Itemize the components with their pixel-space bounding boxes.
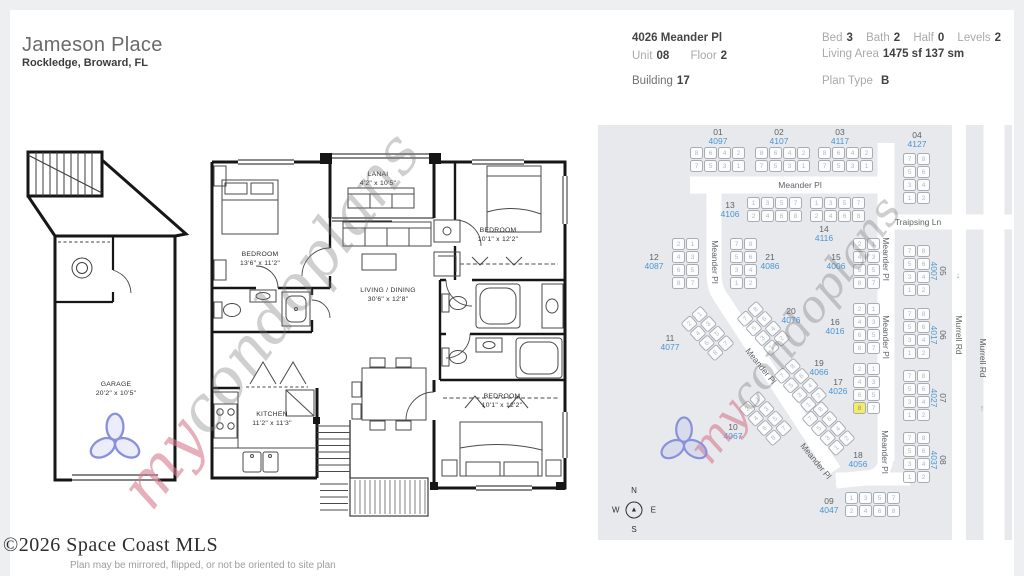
map-unit-09-3[interactable]: 3: [859, 492, 872, 504]
map-unit-12-7[interactable]: 7: [686, 277, 699, 289]
map-unit-13-5[interactable]: 5: [775, 197, 788, 209]
map-unit-13-6[interactable]: 6: [775, 210, 788, 222]
map-unit-02-8[interactable]: 8: [755, 147, 768, 159]
map-building-label-04: 044127: [897, 131, 937, 149]
map-unit-01-5[interactable]: 5: [704, 160, 717, 172]
map-unit-16-7[interactable]: 7: [867, 342, 880, 354]
map-unit-12-5[interactable]: 5: [686, 264, 699, 276]
map-unit-21-8[interactable]: 8: [744, 238, 757, 250]
map-unit-09-4[interactable]: 4: [859, 505, 872, 517]
map-unit-04-4[interactable]: 4: [917, 179, 930, 191]
bath-label: Bath: [866, 32, 890, 44]
building-label: Building: [632, 75, 673, 87]
map-building-label-10: 104067: [713, 423, 753, 441]
map-unit-16-3[interactable]: 3: [867, 316, 880, 328]
map-unit-21-7[interactable]: 7: [730, 238, 743, 250]
map-unit-08-1[interactable]: 1: [903, 471, 916, 483]
map-unit-08-5[interactable]: 5: [903, 445, 916, 457]
map-building-label-16: 164016: [815, 318, 855, 336]
map-unit-06-1[interactable]: 1: [903, 347, 916, 359]
compass-north: N: [631, 486, 637, 495]
unit-value: 08: [656, 50, 669, 62]
living-area-label: Living Area: [822, 48, 879, 60]
map-unit-17-2[interactable]: 2: [853, 363, 866, 375]
map-unit-21-3[interactable]: 3: [730, 264, 743, 276]
unit-floor-line: Unit08 Floor2: [632, 50, 737, 62]
map-unit-13-8[interactable]: 8: [789, 210, 802, 222]
map-building-15: 21436587: [853, 238, 880, 289]
unit-label: Unit: [632, 50, 652, 62]
map-unit-15-7[interactable]: 7: [867, 277, 880, 289]
map-unit-01-4[interactable]: 4: [718, 147, 731, 159]
map-unit-15-8[interactable]: 8: [853, 277, 866, 289]
map-building-12: 21436587: [672, 238, 699, 289]
map-building-06: 78563412: [903, 308, 930, 359]
map-building-label-03: 034117: [820, 128, 860, 146]
map-unit-15-2[interactable]: 2: [853, 238, 866, 250]
map-building-05: 78563412: [903, 245, 930, 296]
map-unit-09-5[interactable]: 5: [873, 492, 886, 504]
site-map: 8642753101409786427531024107864275310341…: [598, 125, 1012, 540]
disclaimer-text: Plan may be mirrored, flipped, or not be…: [70, 560, 336, 571]
map-unit-14-6[interactable]: 6: [838, 210, 851, 222]
map-building-label-13: 134106: [710, 201, 750, 219]
map-unit-03-6[interactable]: 6: [832, 147, 845, 159]
street-label-murrell-rd-8: Murrell Rd: [954, 315, 964, 354]
levels-label: Levels: [957, 32, 990, 44]
map-unit-02-1[interactable]: 1: [797, 160, 810, 172]
map-unit-01-8[interactable]: 8: [690, 147, 703, 159]
map-unit-14-2[interactable]: 2: [810, 210, 823, 222]
compass-east: E: [651, 506, 656, 515]
map-unit-12-1[interactable]: 1: [686, 238, 699, 250]
map-unit-21-1[interactable]: 1: [730, 277, 743, 289]
map-unit-16-1[interactable]: 1: [867, 303, 880, 315]
floorplan-panel: BEDROOM13'6" x 11'2"LANAI4'2" x 10'5"LIV…: [10, 130, 590, 530]
half-value: 0: [938, 32, 944, 44]
street-label-murrell-rd-9: Murrell Rd: [978, 338, 988, 377]
map-unit-13-3[interactable]: 3: [761, 197, 774, 209]
map-unit-12-2[interactable]: 2: [672, 238, 685, 250]
map-unit-03-2[interactable]: 2: [860, 147, 873, 159]
compass-rose: N S W E ▲: [612, 488, 656, 532]
map-unit-08-3[interactable]: 3: [903, 458, 916, 470]
bed-label: Bed: [822, 32, 842, 44]
map-unit-02-4[interactable]: 4: [783, 147, 796, 159]
map-building-09: 13572468: [845, 492, 900, 517]
map-unit-09-6[interactable]: 6: [873, 505, 886, 517]
street-label-traipsing-ln-7: Traipsing Ln: [895, 217, 941, 227]
room-label-kitchen: KITCHEN11'2" x 11'3": [252, 410, 292, 428]
map-building-label-11: 114077: [650, 334, 690, 352]
map-unit-04-3[interactable]: 3: [903, 179, 916, 191]
street-label-meander-pl-1: Meander Pl: [710, 240, 720, 283]
map-unit-04-2[interactable]: 2: [917, 192, 930, 204]
map-unit-08-7[interactable]: 7: [903, 432, 916, 444]
street-label-meander-pl-4: Meander Pl: [880, 430, 890, 473]
map-unit-17-1[interactable]: 1: [867, 363, 880, 375]
room-label-garage: GARAGE20'2" x 10'5": [96, 380, 137, 398]
building-value: 17: [677, 75, 690, 87]
map-building-13: 13572468: [747, 197, 802, 222]
map-building-01: 86427531: [690, 147, 745, 172]
map-unit-05-1[interactable]: 1: [903, 284, 916, 296]
map-unit-02-3[interactable]: 3: [783, 160, 796, 172]
map-building-03: 86427531: [818, 147, 873, 172]
map-unit-17-3[interactable]: 3: [867, 376, 880, 388]
map-unit-04-8[interactable]: 8: [917, 153, 930, 165]
map-unit-16-8[interactable]: 8: [853, 342, 866, 354]
compass-needle-icon: ▲: [626, 502, 643, 519]
compass-south: S: [631, 525, 636, 534]
room-label-living-dining: LIVING / DINING30'6" x 12'8": [360, 286, 416, 304]
map-unit-13-7[interactable]: 7: [789, 197, 802, 209]
map-unit-07-1[interactable]: 1: [903, 409, 916, 421]
map-unit-06-3[interactable]: 3: [903, 334, 916, 346]
map-unit-13-4[interactable]: 4: [761, 210, 774, 222]
plan-type-line: Plan TypeB: [822, 75, 899, 87]
street-label-meander-pl-3: Meander Pl: [881, 315, 891, 358]
map-unit-03-1[interactable]: 1: [860, 160, 873, 172]
map-unit-14-5[interactable]: 5: [838, 197, 851, 209]
road-direction-arrow-1: ↑: [980, 403, 985, 413]
map-unit-21-5[interactable]: 5: [730, 251, 743, 263]
map-building-label-02: 024107: [759, 128, 799, 146]
map-unit-03-7[interactable]: 7: [818, 160, 831, 172]
copyright-text: ©2026 Space Coast MLS: [3, 534, 218, 557]
plan-type-label: Plan Type: [822, 75, 873, 87]
map-unit-15-1[interactable]: 1: [867, 238, 880, 250]
map-building-14: 13572468: [810, 197, 865, 222]
compass-west: W: [612, 506, 620, 515]
room-label-bedroom: BEDROOM10'1" x 12'2": [482, 392, 523, 410]
map-unit-04-5[interactable]: 5: [903, 166, 916, 178]
building-line: Building17: [632, 75, 700, 87]
map-unit-01-7[interactable]: 7: [690, 160, 703, 172]
map-unit-02-2[interactable]: 2: [797, 147, 810, 159]
map-unit-09-8[interactable]: 8: [887, 505, 900, 517]
road-direction-arrow-0: ↓: [956, 270, 961, 280]
map-unit-09-7[interactable]: 7: [887, 492, 900, 504]
map-building-label-01: 014097: [698, 128, 738, 146]
map-unit-06-5[interactable]: 5: [903, 321, 916, 333]
street-label-meander-pl-0: Meander Pl: [778, 180, 821, 190]
map-unit-04-1[interactable]: 1: [903, 192, 916, 204]
map-building-label-14: 144116: [804, 225, 844, 243]
map-unit-01-3[interactable]: 3: [718, 160, 731, 172]
unit-address: 4026 Meander Pl: [632, 32, 722, 44]
map-unit-05-5[interactable]: 5: [903, 258, 916, 270]
map-unit-07-3[interactable]: 3: [903, 396, 916, 408]
map-building-04: 78563412: [903, 153, 930, 204]
living-area-line: Living Area1475 sf 137 sm: [822, 48, 974, 60]
floor-value: 2: [721, 50, 727, 62]
bath-value: 2: [894, 32, 900, 44]
map-building-label-18: 184056: [838, 451, 878, 469]
map-building-label-21: 214086: [750, 253, 790, 271]
map-unit-07-5[interactable]: 5: [903, 383, 916, 395]
room-label-bedroom: BEDROOM10'1" x 12'2": [478, 226, 519, 244]
map-unit-14-8[interactable]: 8: [852, 210, 865, 222]
map-unit-03-8[interactable]: 8: [818, 147, 831, 159]
map-unit-14-1[interactable]: 1: [810, 197, 823, 209]
map-unit-04-7[interactable]: 7: [903, 153, 916, 165]
map-unit-04-6[interactable]: 6: [917, 166, 930, 178]
page-title: Jameson Place: [22, 34, 163, 57]
map-building-08: 78563412: [903, 432, 930, 483]
bed-value: 3: [846, 32, 852, 44]
map-unit-01-1[interactable]: 1: [732, 160, 745, 172]
levels-value: 2: [995, 32, 1001, 44]
map-building-02: 86427531: [755, 147, 810, 172]
map-unit-02-7[interactable]: 7: [755, 160, 768, 172]
map-unit-06-7[interactable]: 7: [903, 308, 916, 320]
map-unit-03-4[interactable]: 4: [846, 147, 859, 159]
living-area-value: 1475 sf 137 sm: [883, 48, 964, 60]
map-building-label-05: 054007: [929, 251, 947, 291]
bed-bath-line: Bed3 Bath2 Half0 Levels2: [822, 32, 1011, 44]
map-unit-01-2[interactable]: 2: [732, 147, 745, 159]
map-unit-14-7[interactable]: 7: [852, 197, 865, 209]
floor-label: Floor: [690, 50, 716, 62]
map-unit-17-7[interactable]: 7: [867, 402, 880, 414]
map-unit-02-5[interactable]: 5: [769, 160, 782, 172]
map-building-label-20: 204076: [771, 307, 811, 325]
map-unit-15-5[interactable]: 5: [867, 264, 880, 276]
map-unit-01-6[interactable]: 6: [704, 147, 717, 159]
plan-type-value: B: [881, 75, 889, 87]
map-unit-selected-17-8[interactable]: 8: [853, 402, 866, 414]
map-building-label-19: 194066: [799, 359, 839, 377]
map-unit-14-4[interactable]: 4: [824, 210, 837, 222]
map-unit-15-3[interactable]: 3: [867, 251, 880, 263]
map-unit-16-2[interactable]: 2: [853, 303, 866, 315]
room-label-lanai: LANAI4'2" x 10'5": [360, 170, 397, 188]
map-unit-03-3[interactable]: 3: [846, 160, 859, 172]
half-label: Half: [913, 32, 933, 44]
map-building-16: 21436587: [853, 303, 880, 354]
map-building-label-12: 124087: [634, 253, 674, 271]
map-building-label-08: 084037: [929, 440, 947, 480]
map-building-label-06: 064017: [929, 315, 947, 355]
map-unit-02-6[interactable]: 6: [769, 147, 782, 159]
map-unit-16-5[interactable]: 5: [867, 329, 880, 341]
map-unit-05-3[interactable]: 3: [903, 271, 916, 283]
map-unit-12-3[interactable]: 3: [686, 251, 699, 263]
map-building-label-09: 094047: [809, 497, 849, 515]
map-unit-03-5[interactable]: 5: [832, 160, 845, 172]
map-building-07: 78563412: [903, 370, 930, 421]
map-unit-05-7[interactable]: 7: [903, 245, 916, 257]
room-label-bedroom: BEDROOM13'6" x 11'2": [240, 250, 280, 268]
map-unit-21-2[interactable]: 2: [744, 277, 757, 289]
map-unit-17-5[interactable]: 5: [867, 389, 880, 401]
map-unit-12-8[interactable]: 8: [672, 277, 685, 289]
map-unit-07-7[interactable]: 7: [903, 370, 916, 382]
map-building-label-07: 074027: [929, 378, 947, 418]
street-label-meander-pl-2: Meander Pl: [881, 237, 891, 280]
map-building-label-15: 154006: [816, 253, 856, 271]
floorplan-labels: BEDROOM13'6" x 11'2"LANAI4'2" x 10'5"LIV…: [10, 130, 590, 530]
map-unit-14-3[interactable]: 3: [824, 197, 837, 209]
page-subtitle: Rockledge, Broward, FL: [22, 57, 148, 69]
